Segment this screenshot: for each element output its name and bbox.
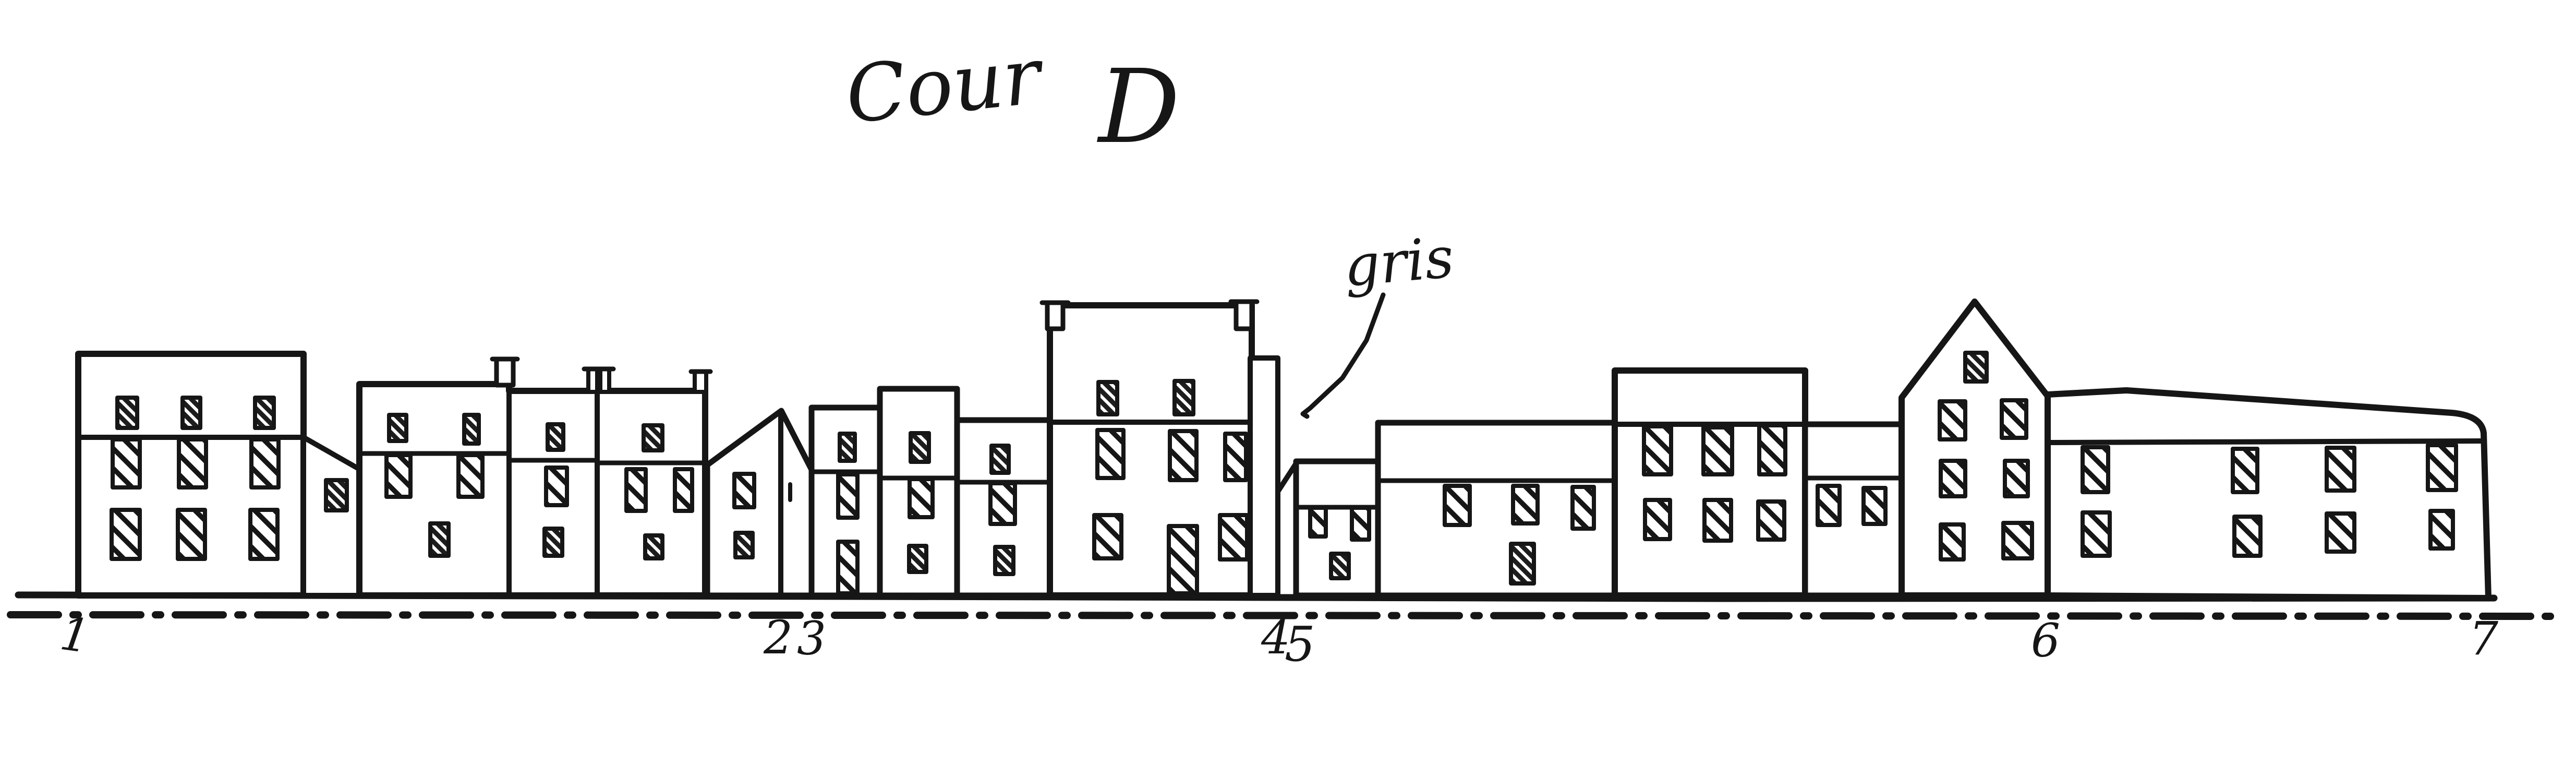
hatched-window-41 xyxy=(1220,515,1247,559)
hatched-window-55 xyxy=(1818,486,1840,525)
hatched-window-53 xyxy=(1704,500,1731,541)
hatched-window-49 xyxy=(1644,426,1671,474)
hatched-window-60 xyxy=(1941,461,1965,496)
small-dark-window-28 xyxy=(911,433,929,462)
gris-label: gris xyxy=(1341,225,1456,300)
small-dark-window-16 xyxy=(548,424,563,450)
hatched-window-67 xyxy=(2234,517,2260,556)
chimney-b-right xyxy=(600,369,609,392)
small-dark-window-33 xyxy=(995,547,1013,574)
hatched-window-66 xyxy=(2233,449,2257,492)
hatched-window-42 xyxy=(1310,508,1326,536)
facade-elevation-drawing: CourDgris1234567 xyxy=(0,0,2576,764)
small-dark-window-18 xyxy=(545,529,562,556)
hatched-window-47 xyxy=(1573,487,1594,529)
hatched-window-7 xyxy=(112,510,140,559)
hatched-window-62 xyxy=(1941,524,1964,559)
marker-3: 3 xyxy=(797,612,826,665)
scanned-elevation-page: CourDgris1234567 xyxy=(0,0,2576,764)
hatched-window-54 xyxy=(1758,502,1784,540)
hatched-window-39 xyxy=(1094,515,1121,558)
house-9-facade xyxy=(1615,371,1805,595)
small-dark-window-35 xyxy=(1175,381,1193,414)
house-11-facade xyxy=(2048,390,2488,598)
house-11-band xyxy=(2048,441,2481,443)
gris-leader-line xyxy=(1303,295,1383,416)
hatched-window-27 xyxy=(838,542,857,593)
hatched-window-20 xyxy=(626,469,646,511)
small-dark-window-10 xyxy=(326,480,347,510)
hatched-window-69 xyxy=(2327,514,2354,552)
hatched-window-26 xyxy=(838,474,857,518)
small-dark-window-22 xyxy=(645,535,662,558)
hatched-window-36 xyxy=(1097,430,1123,478)
title-letter: D xyxy=(1097,47,1180,166)
hatched-window-14 xyxy=(458,455,482,497)
hatched-window-50 xyxy=(1703,427,1732,474)
hatched-window-6 xyxy=(251,439,279,487)
small-dark-window-1 xyxy=(117,398,137,428)
marker-5: 5 xyxy=(1285,616,1315,672)
hatched-window-65 xyxy=(2083,512,2110,556)
tower-segment xyxy=(1250,358,1278,595)
small-dark-window-19 xyxy=(644,425,662,450)
small-dark-window-11 xyxy=(389,415,406,441)
marker-6: 6 xyxy=(2031,614,2060,667)
small-dark-window-12 xyxy=(464,415,479,444)
marker-7: 7 xyxy=(2469,612,2498,665)
hatched-window-70 xyxy=(2428,445,2456,490)
small-dark-window-34 xyxy=(1098,382,1117,414)
hatched-window-68 xyxy=(2327,448,2354,491)
hatched-window-4 xyxy=(113,439,140,487)
hatched-window-61 xyxy=(2005,461,2028,496)
hatched-window-13 xyxy=(386,455,410,497)
small-dark-window-24 xyxy=(735,533,753,557)
hatched-window-32 xyxy=(990,483,1015,524)
small-dark-window-2 xyxy=(183,398,200,428)
chimney-e xyxy=(1236,302,1252,329)
small-dark-window-48 xyxy=(1511,544,1534,583)
marker-1: 1 xyxy=(57,606,93,664)
hatched-window-64 xyxy=(2083,447,2108,492)
small-dark-window-44 xyxy=(1331,554,1349,578)
hatched-window-58 xyxy=(1940,401,1965,439)
hatched-window-17 xyxy=(546,468,567,505)
hatched-window-9 xyxy=(250,510,277,559)
hatched-window-59 xyxy=(2002,400,2026,438)
small-dark-window-57 xyxy=(1965,353,1987,381)
hatched-window-51 xyxy=(1759,425,1785,474)
hatched-window-8 xyxy=(178,510,205,559)
hatched-window-21 xyxy=(675,469,692,511)
chimney-a xyxy=(497,359,513,385)
title-word: Cour xyxy=(842,30,1049,141)
gable-house-1 xyxy=(707,411,812,595)
hatched-window-71 xyxy=(2430,511,2453,548)
small-dark-window-30 xyxy=(909,546,926,572)
small-dark-window-31 xyxy=(991,446,1009,473)
hatched-window-46 xyxy=(1513,486,1538,523)
hatched-window-56 xyxy=(1864,488,1885,524)
hatched-window-37 xyxy=(1170,431,1196,480)
hatched-window-5 xyxy=(179,439,206,487)
hatched-window-38 xyxy=(1225,434,1246,480)
small-dark-window-3 xyxy=(255,398,274,428)
hatched-window-40 xyxy=(1169,526,1197,593)
small-dark-window-25 xyxy=(840,434,855,461)
hatched-window-29 xyxy=(910,479,933,517)
marker-2: 2 xyxy=(763,611,793,664)
chimney-b-left xyxy=(588,369,597,392)
valley-wall xyxy=(304,437,359,595)
chimney-d xyxy=(1047,303,1063,329)
hatched-window-45 xyxy=(1445,486,1470,525)
small-dark-window-15 xyxy=(430,523,449,556)
chimney-c xyxy=(695,372,706,392)
hatched-window-23 xyxy=(734,474,754,507)
hatched-window-63 xyxy=(2003,523,2032,558)
hatched-window-52 xyxy=(1645,500,1670,539)
hatched-window-43 xyxy=(1352,508,1369,540)
